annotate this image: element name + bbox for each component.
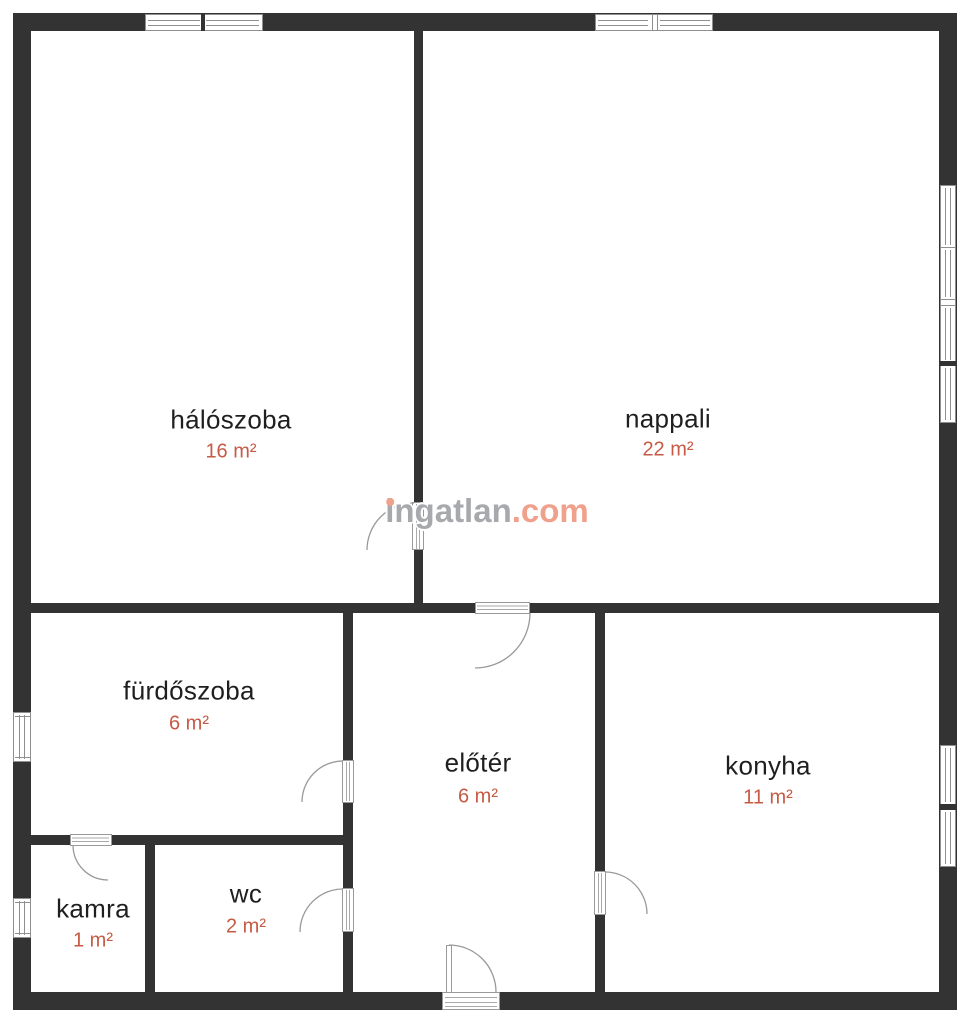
watermark-brand-text: ingatlan [385, 492, 512, 529]
wall-bedroom-living-upper [414, 31, 423, 502]
door-pantry [71, 835, 112, 881]
room-label-wc: wc [230, 879, 262, 910]
room-label-konyha: konyha [725, 751, 811, 782]
wall-hall-kitchen-upper [595, 613, 605, 872]
door-living-to-hall [475, 603, 530, 669]
ingatlan-watermark: ingatlan.com [385, 492, 589, 530]
watermark-tld-text: .com [512, 492, 589, 529]
wall-exterior-left [13, 13, 31, 1010]
window-kitchen-right [940, 746, 956, 867]
room-label-nappali: nappali [625, 404, 711, 435]
room-label-kamra: kamra [56, 894, 130, 925]
room-label-haloszoba: hálószoba [170, 405, 291, 436]
door-entrance [443, 945, 500, 1010]
window-bedroom-top [146, 14, 263, 31]
door-bathroom [302, 761, 354, 803]
room-area-eloter: 6 m² [458, 786, 498, 809]
floor-plan: hálószoba 16 m² nappali 22 m² fürdőszoba… [0, 0, 969, 1024]
wall-pantry-top-right [111, 835, 343, 845]
wall-hall-kitchen-lower [595, 914, 605, 992]
window-living-right [940, 186, 956, 423]
window-pantry-left [14, 899, 31, 938]
door-kitchen [595, 872, 648, 915]
room-label-furdoszoba: fürdőszoba [123, 676, 255, 707]
wall-main-horizontal-left [31, 603, 475, 613]
doors [71, 503, 648, 1010]
wall-pantry-wc [145, 845, 155, 992]
window-bathroom-left [14, 713, 31, 762]
wall-bathroom-hall-middle [343, 802, 353, 888]
room-area-haloszoba: 16 m² [205, 441, 256, 464]
room-area-konyha: 11 m² [743, 787, 793, 810]
room-area-furdoszoba: 6 m² [169, 713, 209, 736]
room-area-nappali: 22 m² [642, 439, 693, 462]
door-wc [300, 889, 354, 933]
room-area-wc: 2 m² [226, 916, 266, 939]
wall-bathroom-hall-upper [343, 613, 353, 760]
room-label-eloter: előtér [445, 748, 512, 779]
wall-bathroom-hall-lower [343, 932, 353, 992]
wall-pantry-top-left [31, 835, 71, 845]
wall-main-horizontal-right [530, 603, 939, 613]
room-area-kamra: 1 m² [73, 930, 113, 953]
window-living-top [596, 15, 713, 31]
